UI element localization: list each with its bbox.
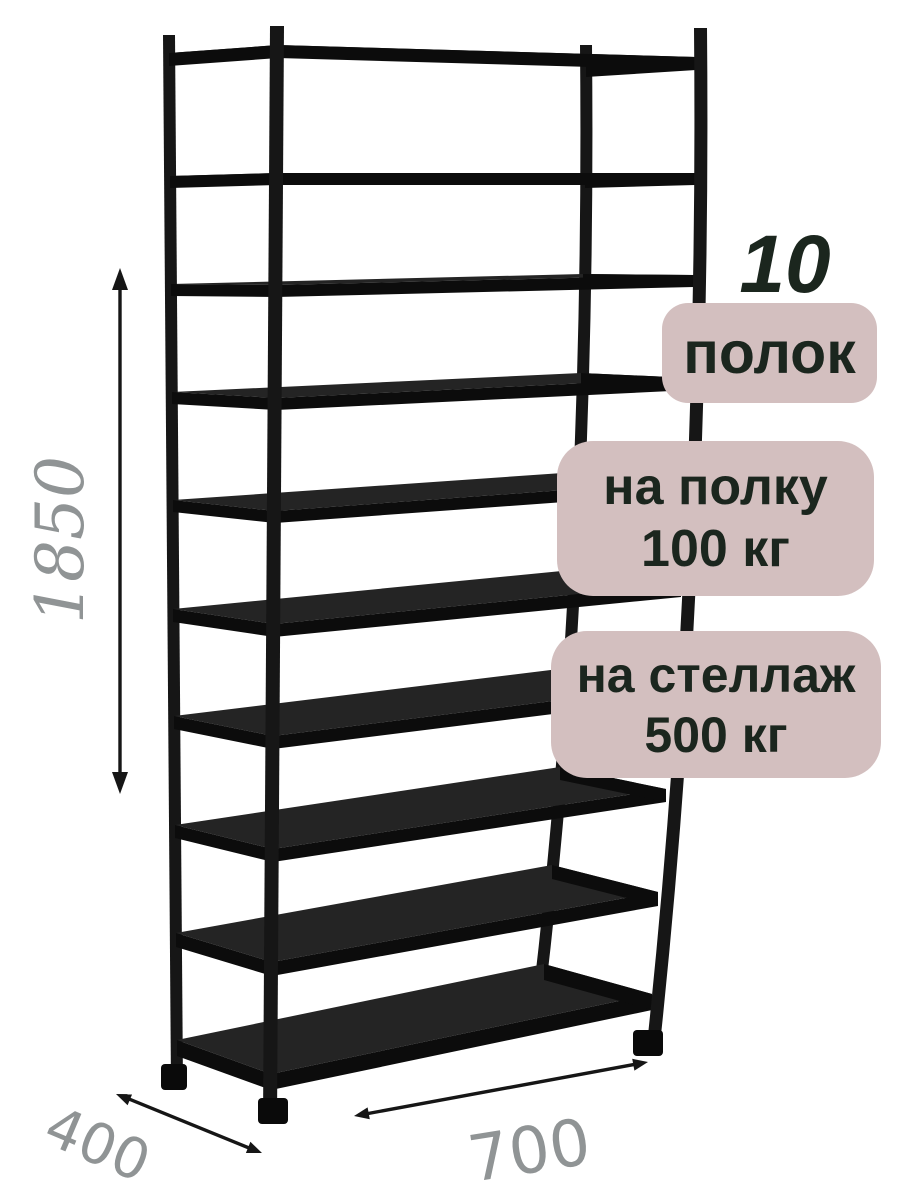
rack-load-badge: на стеллаж 500 кг [551, 631, 881, 778]
rack-load-line2: 500 кг [644, 705, 787, 765]
width-dimension: 700 [354, 1059, 648, 1198]
height-dimension: 1850 [22, 268, 128, 794]
depth-dimension-label: 400 [35, 1094, 159, 1196]
shelf-load-badge: на полку 100 кг [557, 441, 874, 596]
shelf-8 [175, 767, 666, 862]
shelf-count-badge: полок [662, 303, 877, 403]
near-right-foot [633, 1030, 663, 1056]
rack-illustration: 1850 400 700 [0, 0, 900, 1200]
height-dimension-label: 1850 [22, 456, 99, 624]
shelf-3 [171, 274, 694, 297]
shelf-count-number: 10 [700, 224, 870, 306]
rack-load-line1: на стеллаж [577, 645, 856, 705]
far-left-foot [161, 1064, 187, 1090]
shelf-load-line1: на полку [603, 457, 828, 518]
shelf-9 [176, 865, 658, 976]
near-left-foot [258, 1098, 288, 1124]
shelf-1 [169, 45, 696, 77]
far-left-post [163, 35, 183, 1086]
width-dimension-label: 700 [463, 1106, 595, 1198]
product-image: 1850 400 700 10 полок на полку 100 кг на… [0, 0, 900, 1200]
shelf-2 [170, 173, 695, 188]
shelf-10 [177, 964, 652, 1090]
shelf-load-line2: 100 кг [641, 519, 790, 580]
shelf-count-label: полок [683, 319, 855, 387]
shelf-4 [172, 373, 692, 410]
depth-dimension: 400 [35, 1094, 262, 1196]
